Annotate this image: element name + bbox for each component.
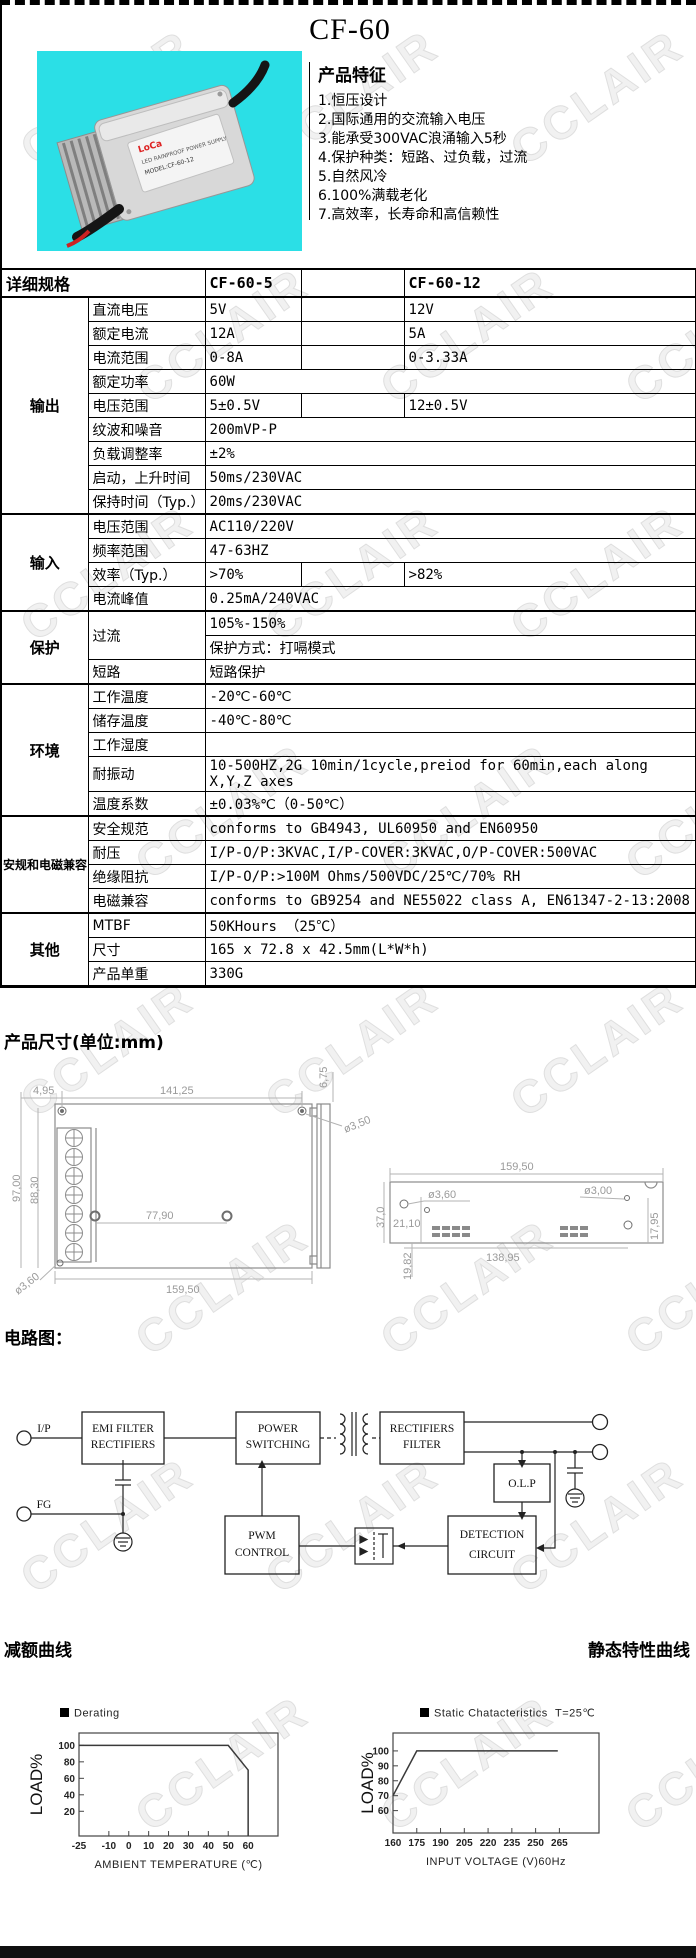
table-row: 电流范围0-8A0-3.33A (1, 346, 696, 370)
table-row: 尺寸165 x 72.8 x 42.5mm(L*W*h) (1, 938, 696, 962)
fg-label: FG (37, 1499, 52, 1511)
x-tick-label: 205 (456, 1838, 473, 1849)
feature-item: 3.能承受300VAC浪涌输入5秒 (318, 130, 690, 149)
static-characteristics-chart: Static ChatacteristicsT=25℃6070809010016… (358, 1700, 688, 1946)
spec-table: 详细规格CF-60-5CF-60-12输出直流电压5V12V额定电流12A5A电… (0, 268, 696, 988)
features-panel: 产品特征 1.恒压设计2.国际通用的交流输入电压3.能承受300VAC浪涌输入5… (318, 61, 690, 225)
header-empty (301, 269, 404, 297)
transformer (340, 1412, 368, 1456)
dim-label: 97,00 (11, 1174, 23, 1202)
table-row: 效率（Typ.）>70%>82% (1, 563, 696, 587)
circuit-labels: I/P FG EMI FILTER RECTIFIERS POWER SWITC… (37, 1423, 536, 1561)
row-value-model2: 0-3.33A (404, 346, 696, 370)
y-tick-label: 20 (64, 1807, 76, 1818)
dim-label: 17,95 (649, 1212, 661, 1240)
row-label: 安全规范 (88, 816, 205, 841)
dim-label: 77,90 (146, 1210, 174, 1222)
x-tick-label: 235 (504, 1838, 521, 1849)
dim-label: 141,25 (160, 1085, 194, 1097)
row-value-span: -40℃-80℃ (205, 709, 696, 733)
pwm-label-1: PWM (248, 1530, 275, 1542)
table-row: 额定功率60W (1, 370, 696, 394)
side-dim-labels: 159,50 37,0 ø3,60 ø3,00 21,10 138,95 17,… (375, 1161, 661, 1280)
row-value-model1: 5±0.5V (205, 394, 301, 418)
dim-label: 138,95 (486, 1252, 520, 1264)
x-tick-label: -25 (72, 1841, 87, 1852)
row-value: 保护方式：打嗝模式 (205, 636, 696, 660)
terminal-block (66, 1130, 83, 1261)
table-row: 耐振动10-500HZ,2G 10min/1cycle,preiod for 6… (1, 757, 696, 792)
table-row: 保护过流105%-150% (1, 611, 696, 636)
circuit-blocks (17, 1412, 608, 1574)
row-label: 尺寸 (88, 938, 205, 962)
row-value: 105%-150% (205, 611, 696, 636)
x-tick-label: 0 (126, 1841, 132, 1852)
detection-label-1: DETECTION (460, 1529, 525, 1541)
row-value-model1: 0-8A (205, 346, 301, 370)
row-label: 额定电流 (88, 322, 205, 346)
pwm-control-box (225, 1516, 299, 1574)
y-axis-label: LOAD% (28, 1754, 46, 1815)
product-photo: LoCa LED RAINPROOF POWER SUPPLY MODEL:CF… (37, 51, 302, 251)
feature-item: 1.恒压设计 (318, 92, 690, 111)
table-row: 启动，上升时间50ms/230VAC (1, 466, 696, 490)
page-title: CF-60 (2, 13, 696, 47)
row-value-span (205, 733, 696, 757)
row-value-model2: 12±0.5V (404, 394, 696, 418)
output-terminal-plus (593, 1415, 608, 1430)
row-value-span: 20ms/230VAC (205, 490, 696, 515)
rectifiers-filter-box (380, 1412, 464, 1464)
dimensions-heading: 产品尺寸(单位:mm) (4, 1028, 164, 1053)
side-profile-strip (310, 1104, 330, 1268)
row-value-span: 200mVP-P (205, 418, 696, 442)
table-row: 产品单重330G (1, 962, 696, 987)
front-dim-labels: 4,95 141,25 6,75 ø3,50 97,00 88,30 77,90… (11, 1067, 373, 1298)
emi-filter-box (82, 1412, 164, 1464)
header-model-1: CF-60-5 (205, 269, 301, 297)
power-label-1: POWER (258, 1423, 299, 1435)
row-value-span: 短路保护 (205, 660, 696, 685)
x-tick-label: 265 (551, 1838, 568, 1849)
x-tick-label: 190 (432, 1838, 449, 1849)
row-value-model1: 5V (205, 297, 301, 322)
legend-swatch (60, 1708, 69, 1717)
power-switching-box (236, 1412, 320, 1464)
features-heading: 产品特征 (318, 61, 690, 86)
table-row: 额定电流12A5A (1, 322, 696, 346)
table-row: 负载调整率±2% (1, 442, 696, 466)
plot-frame (393, 1733, 599, 1833)
legend-text: Static Chatacteristics (434, 1708, 548, 1720)
x-axis-label: INPUT VOLTAGE (V)60Hz (426, 1856, 566, 1868)
row-label: 耐压 (88, 841, 205, 865)
vent-slots (432, 1226, 588, 1237)
row-value-span: -20℃-60℃ (205, 684, 696, 709)
derating-curve-heading: 减额曲线 (4, 1636, 72, 1661)
dim-label: ø3,50 (342, 1114, 373, 1136)
feature-item: 4.保护种类：短路、过负载，过流 (318, 149, 690, 168)
row-value-empty (301, 563, 404, 587)
x-axis-label: AMBIENT TEMPERATURE (℃) (94, 1859, 262, 1871)
table-row: 安规和电磁兼容安全规范conforms to GB4943, UL60950 a… (1, 816, 696, 841)
olp-label: O.L.P (508, 1478, 535, 1490)
dim-label: 159,50 (166, 1284, 200, 1296)
static-curve-heading: 静态特性曲线 (588, 1636, 690, 1661)
x-tick-label: 10 (143, 1841, 155, 1852)
x-tick-label: -10 (102, 1841, 117, 1852)
y-tick-label: 60 (378, 1806, 390, 1817)
dim-label: 19,82 (402, 1252, 414, 1280)
section-cell: 其他 (1, 913, 88, 987)
optocoupler (355, 1528, 393, 1564)
row-label: 频率范围 (88, 539, 205, 563)
table-row: 输出直流电压5V12V (1, 297, 696, 322)
row-value-span: conforms to GB4943, UL60950 and EN60950 (205, 816, 696, 841)
dim-label: ø3,60 (12, 1271, 42, 1298)
dim-label: ø3,00 (584, 1185, 612, 1197)
row-value-model2: 5A (404, 322, 696, 346)
table-row: 电磁兼容conforms to GB9254 and NE55022 class… (1, 889, 696, 914)
legend-swatch (420, 1708, 429, 1717)
ground-symbols (114, 1489, 584, 1551)
mounting-holes (57, 1107, 306, 1266)
table-row: 短路短路保护 (1, 660, 696, 685)
y-tick-label: 60 (64, 1774, 76, 1785)
output-terminal-minus (593, 1445, 608, 1460)
detection-label-2: CIRCUIT (469, 1549, 515, 1561)
row-value-span: 47-63HZ (205, 539, 696, 563)
rect-label-2: FILTER (403, 1439, 441, 1451)
y-tick-label: 80 (64, 1757, 76, 1768)
row-label: 耐振动 (88, 757, 205, 792)
dim-label: 21,10 (393, 1218, 421, 1230)
table-row: 频率范围47-63HZ (1, 539, 696, 563)
row-value-span: 50KHours （25℃） (205, 913, 696, 938)
table-row: 其他MTBF50KHours （25℃） (1, 913, 696, 938)
legend-text: Derating (74, 1708, 120, 1720)
table-header-row: 详细规格CF-60-5CF-60-12 (1, 269, 696, 297)
row-value-empty (301, 297, 404, 322)
y-axis-label: LOAD% (358, 1752, 377, 1813)
table-row: 绝缘阻抗I/P-O/P:>100M Ohms/500VDC/25℃/70% RH (1, 865, 696, 889)
row-label: 储存温度 (88, 709, 205, 733)
feature-item: 5.自然风冷 (318, 168, 690, 187)
row-label: 纹波和噪音 (88, 418, 205, 442)
x-tick-label: 250 (527, 1838, 544, 1849)
ip-terminal (17, 1431, 31, 1445)
y-tick-label: 90 (378, 1761, 390, 1772)
section-cell: 输出 (1, 297, 88, 514)
row-label: 温度系数 (88, 792, 205, 817)
dim-label: 88,30 (29, 1176, 41, 1204)
table-row: 耐压I/P-O/P:3KVAC,I/P-COVER:3KVAC,O/P-COVE… (1, 841, 696, 865)
circuit-heading: 电路图： (4, 1324, 72, 1349)
feature-item: 2.国际通用的交流输入电压 (318, 111, 690, 130)
row-label: 保持时间（Typ.） (88, 490, 205, 515)
row-label: 电压范围 (88, 514, 205, 539)
row-value-empty (301, 322, 404, 346)
table-row: 电流峰值0.25mA/240VAC (1, 587, 696, 612)
row-value-model1: 12A (205, 322, 301, 346)
row-label: 电磁兼容 (88, 889, 205, 914)
row-label: 效率（Typ.） (88, 563, 205, 587)
row-value-model2: 12V (404, 297, 696, 322)
x-tick-label: 30 (183, 1841, 195, 1852)
power-label-2: SWITCHING (246, 1439, 311, 1451)
row-value-span: I/P-O/P:3KVAC,I/P-COVER:3KVAC,O/P-COVER:… (205, 841, 696, 865)
header-model-2: CF-60-12 (404, 269, 696, 297)
detection-circuit-box (448, 1516, 536, 1574)
x-tick-label: 175 (408, 1838, 425, 1849)
y-tick-label: 80 (378, 1776, 390, 1787)
table-row: 工作湿度 (1, 733, 696, 757)
row-value-span: ±2% (205, 442, 696, 466)
x-tick-label: 220 (480, 1838, 497, 1849)
x-tick-label: 20 (163, 1841, 175, 1852)
table-row: 输入电压范围AC110/220V (1, 514, 696, 539)
row-label: 绝缘阻抗 (88, 865, 205, 889)
section-cell: 安规和电磁兼容 (1, 816, 88, 913)
feature-item: 7.高效率，长寿命和高信赖性 (318, 206, 690, 225)
output-cable (233, 65, 265, 103)
table-row: 储存温度-40℃-80℃ (1, 709, 696, 733)
row-value-span: 10-500HZ,2G 10min/1cycle,preiod for 60mi… (205, 757, 696, 792)
row-label: 直流电压 (88, 297, 205, 322)
row-label: MTBF (88, 913, 205, 938)
dim-label: ø3,60 (428, 1189, 456, 1201)
fg-terminal (17, 1507, 31, 1521)
row-value-span: 60W (205, 370, 696, 394)
row-value-span: AC110/220V (205, 514, 696, 539)
derating-chart: Derating20406080100-25-100102030405060LO… (28, 1700, 358, 1946)
row-label: 过流 (88, 611, 205, 660)
table-row: 环境工作温度-20℃-60℃ (1, 684, 696, 709)
row-value-span: 50ms/230VAC (205, 466, 696, 490)
y-tick-label: 100 (58, 1741, 75, 1752)
row-value-span: I/P-O/P:>100M Ohms/500VDC/25℃/70% RH (205, 865, 696, 889)
row-value-span: conforms to GB9254 and NE55022 class A, … (205, 889, 696, 914)
dim-label: 159,50 (500, 1161, 534, 1173)
x-tick-label: 160 (385, 1838, 402, 1849)
dim-label: 37,0 (375, 1207, 387, 1228)
table-row: 保持时间（Typ.）20ms/230VAC (1, 490, 696, 515)
power-supply-illustration: LoCa LED RAINPROOF POWER SUPPLY MODEL:CF… (37, 51, 302, 251)
data-line (79, 1745, 248, 1836)
row-value-span: 330G (205, 962, 696, 987)
row-label: 启动，上升时间 (88, 466, 205, 490)
row-value-span: 165 x 72.8 x 42.5mm(L*W*h) (205, 938, 696, 962)
section-cell: 输入 (1, 514, 88, 611)
section-cell: 保护 (1, 611, 88, 684)
data-line (393, 1751, 558, 1796)
row-label: 产品单重 (88, 962, 205, 987)
row-value-model2: >82% (404, 563, 696, 587)
circuit-diagram: I/P FG EMI FILTER RECTIFIERS POWER SWITC… (0, 1364, 696, 1624)
ip-label: I/P (37, 1423, 50, 1435)
table-row: 电压范围5±0.5V12±0.5V (1, 394, 696, 418)
table-row: 纹波和噪音200mVP-P (1, 418, 696, 442)
dim-label: 6,75 (318, 1067, 330, 1088)
row-label: 工作温度 (88, 684, 205, 709)
row-label: 短路 (88, 660, 205, 685)
x-tick-label: 50 (223, 1841, 235, 1852)
feature-item: 6.100%满载老化 (318, 187, 690, 206)
x-tick-label: 60 (243, 1841, 255, 1852)
bottom-bar (0, 1946, 696, 1958)
row-label: 额定功率 (88, 370, 205, 394)
row-label: 工作湿度 (88, 733, 205, 757)
header-section: CF-60 LoCa LED RAINPROOF POWER SUPPLY MO… (0, 5, 696, 268)
x-tick-label: 40 (203, 1841, 215, 1852)
dimension-drawing: 4,95 141,25 6,75 ø3,50 97,00 88,30 77,90… (0, 1056, 696, 1318)
y-tick-label: 70 (378, 1791, 390, 1802)
dim-label: 4,95 (33, 1085, 54, 1097)
side-dim-lines (384, 1168, 663, 1277)
row-value-span: 0.25mA/240VAC (205, 587, 696, 612)
row-value-span: ±0.03%℃（0-50℃） (205, 792, 696, 817)
rect-label-1: RECTIFIERS (390, 1423, 455, 1435)
row-label: 电流峰值 (88, 587, 205, 612)
header-spec-title: 详细规格 (1, 269, 205, 297)
row-label: 电流范围 (88, 346, 205, 370)
y-tick-label: 40 (64, 1790, 76, 1801)
table-row: 温度系数±0.03%℃（0-50℃） (1, 792, 696, 817)
emi-label-1: EMI FILTER (92, 1423, 154, 1435)
row-value-empty (301, 346, 404, 370)
row-value-empty (301, 394, 404, 418)
features-list: 1.恒压设计2.国际通用的交流输入电压3.能承受300VAC浪涌输入5秒4.保护… (318, 92, 690, 225)
legend-note: T=25℃ (555, 1708, 595, 1720)
row-value-model1: >70% (205, 563, 301, 587)
header-divider (309, 62, 310, 220)
emi-label-2: RECTIFIERS (91, 1439, 156, 1451)
row-label: 电压范围 (88, 394, 205, 418)
section-cell: 环境 (1, 684, 88, 816)
pwm-label-2: CONTROL (235, 1547, 289, 1559)
row-label: 负载调整率 (88, 442, 205, 466)
front-view (55, 1104, 312, 1268)
